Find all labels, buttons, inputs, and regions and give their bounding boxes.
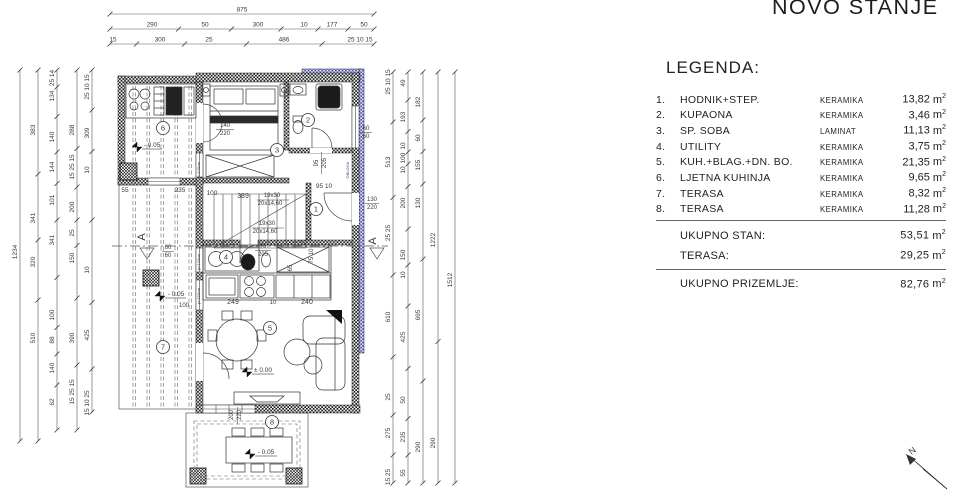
room-number: 3 <box>275 146 279 155</box>
legend-divider <box>656 220 946 221</box>
dim-label: 200 <box>69 201 76 212</box>
room-number: 1 <box>314 205 318 214</box>
legend-item-number: 2. <box>656 109 680 121</box>
insulation-strip-right <box>359 69 364 353</box>
dim-label: 25 10 15 <box>385 69 392 95</box>
dim-label: 134 <box>49 90 56 101</box>
legend-item-area: 8,32m2 <box>892 187 946 200</box>
annotation-label: 240 <box>301 299 313 306</box>
dim-label: 144 <box>49 161 56 172</box>
annotation-label: 65 <box>288 264 294 271</box>
annotation-label: 249 <box>227 299 239 306</box>
room-number: 8 <box>270 418 274 427</box>
legend-item-area: 21,35m2 <box>892 156 946 169</box>
room-number: 7 <box>161 343 165 352</box>
legend-item-row: 7. TERASA KERAMIKA 8,32m2 <box>656 187 946 200</box>
annotation-label: 55 <box>121 187 129 194</box>
subtotal-label: TERASA: <box>680 250 900 262</box>
room-number: 5 <box>268 324 272 333</box>
subtotal-value: 29,25m2 <box>900 249 946 262</box>
dim-label: 1234 <box>12 244 19 259</box>
legend-item-material: KERAMIKA <box>820 158 892 167</box>
dining-table <box>208 311 266 369</box>
floor-plan-sheet: { "title": "NOVO STANJE", "legend": { "h… <box>0 0 960 497</box>
drawing-title: NOVO STANJE <box>772 0 939 20</box>
annotation-label: 220 <box>220 131 231 137</box>
subtotal-label: UKUPNO STAN: <box>680 230 900 242</box>
legend-item-area: 11,13m2 <box>892 124 946 137</box>
legend-subtotal-row: UKUPNO STAN: 53,51m2 <box>656 229 946 242</box>
dim-label: 25 25 <box>385 224 392 241</box>
dim-label: 610 <box>385 311 392 322</box>
dim-label: 88 <box>49 336 56 344</box>
annotation-label: 19x30 <box>264 193 281 199</box>
legend-item-material: KERAMIKA <box>820 190 892 199</box>
legend-item-row: 8. TERASA KERAMIKA 11,28m2 <box>656 203 946 216</box>
legend-item-material: KERAMIKA <box>820 205 892 214</box>
annotation-label: OBLOGA <box>345 161 350 178</box>
dim-label: 10 <box>400 166 407 174</box>
annotation-label: 20x14,60 <box>253 229 278 235</box>
dim-label: 486 <box>279 37 290 44</box>
legend-heading: LEGENDA: <box>666 58 946 78</box>
annotation-label: N <box>907 445 918 457</box>
dim-label: 49 <box>400 79 407 87</box>
dim-label: 55 <box>400 469 407 477</box>
subtotal-value: 53,51m2 <box>900 229 946 242</box>
dim-label: 200 <box>400 197 407 208</box>
legend-item-name: KUH.+BLAG.+DN. BO. <box>680 156 820 168</box>
legend-item-material: LAMINAT <box>820 127 892 136</box>
dim-label: 25 10 15 <box>347 37 373 44</box>
dim-label: 100 <box>49 309 56 320</box>
dim-label: 101 <box>49 194 56 205</box>
dim-label: 300 <box>155 37 166 44</box>
annotation-label: 389 <box>237 193 249 200</box>
bathroom-fixtures <box>290 84 342 134</box>
dim-label: 150 <box>69 252 76 263</box>
legend-item-number: 1. <box>656 94 680 106</box>
legend-item-material: KERAMIKA <box>820 143 892 152</box>
dim-label: 193 <box>400 111 407 122</box>
annotation-label: 220 <box>367 205 378 211</box>
dim-label: 1222 <box>430 232 437 247</box>
dim-label: 140 <box>49 131 56 142</box>
annotation-label: 205 <box>322 157 328 168</box>
dim-label: 290 <box>147 22 158 29</box>
legend-item-area: 9,65m2 <box>892 171 946 184</box>
legend-panel: LEGENDA: 1. HODNIK+STEP. KERAMIKA 13,82m… <box>656 58 946 297</box>
annotation-label: 20x14,60 <box>258 201 283 207</box>
annotation-label: 200 <box>229 409 235 420</box>
dim-label: 390 <box>69 332 76 343</box>
annotation-label: 205 <box>258 252 269 258</box>
legend-item-number: 4. <box>656 141 680 153</box>
fireplace <box>326 310 342 324</box>
dim-label: 182 <box>415 96 422 107</box>
north-arrow-icon <box>906 454 947 489</box>
dim-label: 341 <box>30 212 37 223</box>
dim-label: 513 <box>385 156 392 167</box>
legend-item-name: TERASA <box>680 188 820 200</box>
bed <box>210 86 278 150</box>
annotation-label: ± 0.00 <box>254 367 272 374</box>
annotation-label: - 0.05 <box>168 291 185 298</box>
annotation-label: A <box>367 237 379 245</box>
annotation-label: 95 10 <box>316 183 333 190</box>
annotation-label: 100 <box>207 190 218 197</box>
wardrobe <box>206 155 274 177</box>
dim-label: 15 10 25 <box>84 390 91 416</box>
dim-label: 25 10 15 <box>84 74 91 100</box>
dim-label: 60 <box>415 134 422 142</box>
legend-item-material: KERAMIKA <box>820 96 892 105</box>
dim-label: 695 <box>415 309 422 320</box>
dim-label: 25 <box>385 393 392 401</box>
dim-label: 25 <box>69 229 76 237</box>
legend-item-row: 4. UTILITY KERAMIKA 3,75m2 <box>656 140 946 153</box>
legend-item-name: TERASA <box>680 203 820 215</box>
dim-label: 100 <box>400 152 407 163</box>
legend-divider <box>656 269 946 270</box>
legend-item-material: KERAMIKA <box>820 111 892 120</box>
dim-label: 309 <box>84 127 91 138</box>
dim-label: 15 25 <box>385 468 392 485</box>
annotation-label: 220 <box>237 409 243 420</box>
legend-item-area: 13,82m2 <box>892 93 946 106</box>
annotation-label: 100 <box>179 303 190 309</box>
legend-total-row: UKUPNO PRIZEMLJE: 82,76m2 <box>656 278 946 291</box>
dim-label: 510 <box>30 332 37 343</box>
legend-item-row: 5. KUH.+BLAG.+DN. BO. KERAMIKA 21,35m2 <box>656 156 946 169</box>
annotation-label: 125 <box>293 240 305 247</box>
legend-item-name: UTILITY <box>680 141 820 153</box>
tv-bench <box>234 392 300 404</box>
dim-label: 275 <box>385 427 392 438</box>
annotation-label: 130 <box>367 197 378 203</box>
total-value: 82,76m2 <box>900 278 946 291</box>
annotation-label: 19x30 <box>259 221 276 227</box>
annotation-label: 140 <box>220 123 231 129</box>
dim-label: 62 <box>49 398 56 406</box>
dim-label: 235 <box>400 431 407 442</box>
annotation-label: - 0.05 <box>144 142 161 149</box>
legend-item-name: SP. SOBA <box>680 125 820 137</box>
annotation-label: 10 <box>270 300 277 306</box>
terrace-outlines <box>119 185 308 487</box>
dim-label: 383 <box>30 124 37 135</box>
legend-item-row: 1. HODNIK+STEP. KERAMIKA 13,82m2 <box>656 93 946 106</box>
legend-item-number: 8. <box>656 203 680 215</box>
legend-item-row: 6. LJETNA KUHINJA KERAMIKA 9,65m2 <box>656 171 946 184</box>
annotation-label: p=100cm <box>196 161 201 178</box>
annotation-label: - 0.05 <box>258 449 275 456</box>
dim-label: 25 14 <box>49 69 56 86</box>
legend-item-number: 6. <box>656 172 680 184</box>
annotation-label: 60 <box>363 134 370 140</box>
legend-item-name: KUPAONA <box>680 109 820 121</box>
legend-item-number: 3. <box>656 125 680 137</box>
dim-label: 10 <box>84 266 91 274</box>
dim-label: 425 <box>400 331 407 342</box>
dim-label: 875 <box>237 7 248 14</box>
dim-label: 150 <box>400 249 407 260</box>
dim-label: 177 <box>327 22 338 29</box>
room-number: 4 <box>224 253 228 262</box>
legend-item-number: 5. <box>656 156 680 168</box>
total-label: UKUPNO PRIZEMLJE: <box>680 278 900 290</box>
legend-item-row: 3. SP. SOBA LAMINAT 11,13m2 <box>656 124 946 137</box>
dim-label: 130 <box>415 197 422 208</box>
dim-label: 50 <box>201 22 209 29</box>
dim-label: 10 <box>400 142 407 150</box>
annotation-label: 60 <box>165 253 172 259</box>
legend-subtotal-row: TERASA: 29,25m2 <box>656 249 946 262</box>
dim-label: 320 <box>30 256 37 267</box>
legend-item-area: 11,28m2 <box>892 203 946 216</box>
dim-label: 290 <box>430 437 437 448</box>
annotation-label: p=160cm <box>196 287 201 304</box>
legend-item-area: 3,75m2 <box>892 140 946 153</box>
annotation-label: p=140cm <box>196 253 201 270</box>
dim-label: 288 <box>69 124 76 135</box>
shower <box>318 86 340 108</box>
legend-item-name: HODNIK+STEP. <box>680 94 820 106</box>
dim-label: 15 <box>109 37 117 44</box>
annotation-label: 95 <box>314 159 320 166</box>
dim-label: 50 <box>400 396 407 404</box>
dim-label: 290 <box>415 441 422 452</box>
annotation-label: A <box>136 233 148 241</box>
annotation-label: 75 <box>260 244 267 250</box>
dim-label: 1512 <box>447 272 454 287</box>
dim-label: 140 <box>49 362 56 373</box>
dim-label: 25 <box>205 37 213 44</box>
annotation-label: 235 <box>175 187 186 194</box>
dim-label: 425 <box>84 329 91 340</box>
legend-item-material: KERAMIKA <box>820 174 892 183</box>
washer <box>206 275 238 298</box>
legend-item-number: 7. <box>656 188 680 200</box>
legend-item-area: 3,46m2 <box>892 109 946 122</box>
dim-label: 300 <box>253 22 264 29</box>
dim-label: 155 <box>415 159 422 170</box>
annotation-label: 60 <box>363 126 370 132</box>
room-number: 6 <box>161 124 165 133</box>
dim-label: 15 25 15 <box>69 154 76 180</box>
dim-label: 10 <box>300 22 308 29</box>
dim-label: 15 25 15 <box>69 379 76 405</box>
dim-label: 50 <box>360 22 368 29</box>
annotation-label: 60 <box>165 245 172 251</box>
annotation-label: 75 10 <box>309 248 315 264</box>
dim-label: 10 <box>400 271 407 279</box>
legend-item-row: 2. KUPAONA KERAMIKA 3,46m2 <box>656 109 946 122</box>
legend-items: 1. HODNIK+STEP. KERAMIKA 13,82m2 2. KUPA… <box>656 93 946 215</box>
dim-label: 10 <box>84 166 91 174</box>
room-number: 2 <box>306 116 310 125</box>
sofa <box>284 316 345 390</box>
dim-label: 341 <box>49 234 56 245</box>
legend-item-name: LJETNA KUHINJA <box>680 172 820 184</box>
